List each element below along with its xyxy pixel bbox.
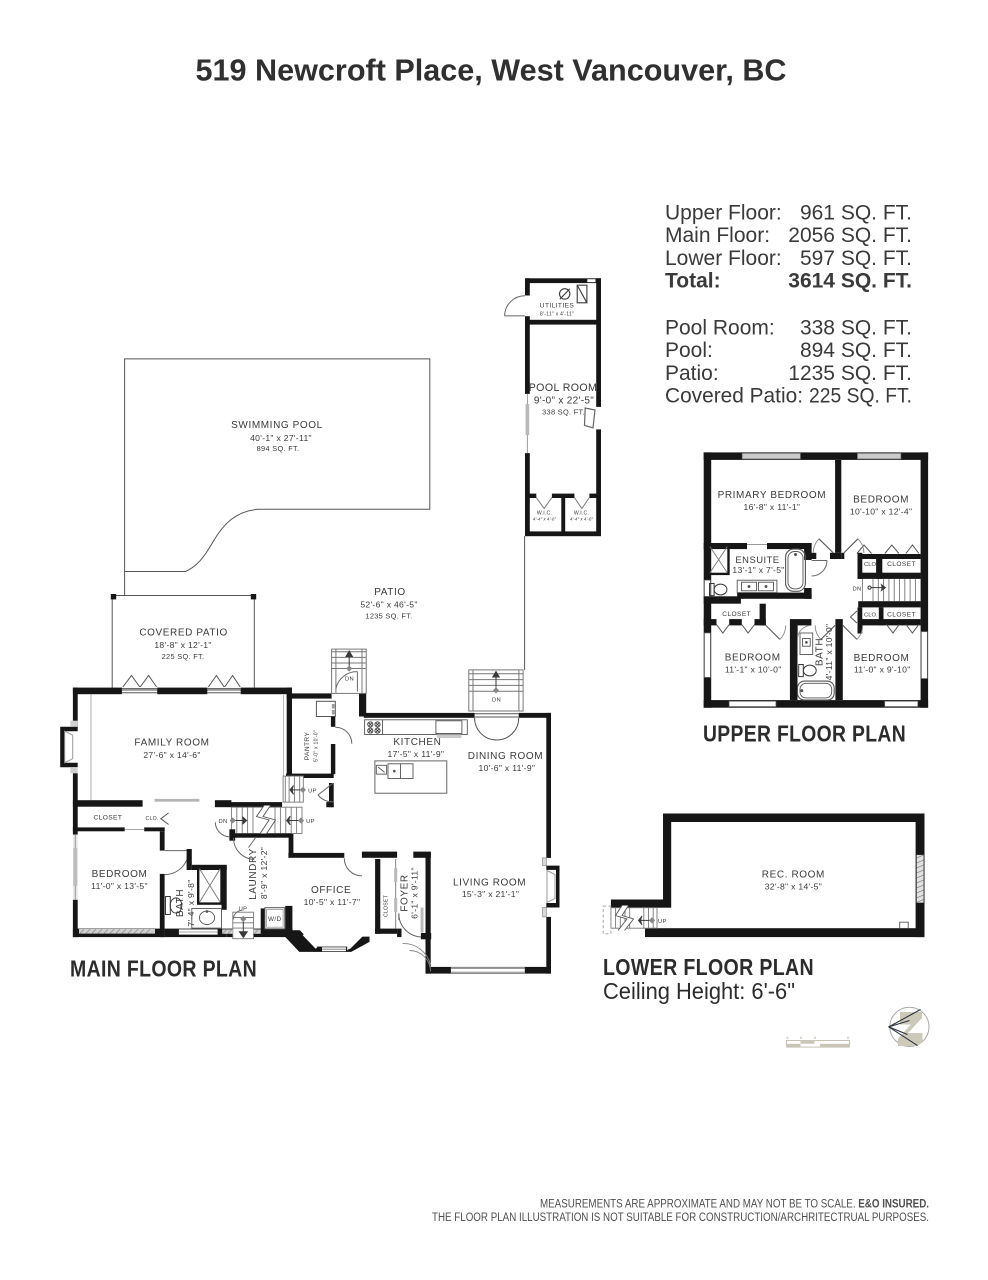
- svg-text:Main Floor:: Main Floor:: [665, 224, 770, 247]
- svg-text:Lower Floor:: Lower Floor:: [665, 247, 782, 270]
- svg-text:Patio:: Patio:: [665, 362, 719, 385]
- svg-text:UP: UP: [308, 788, 317, 794]
- svg-text:40'-1" x 27'-11": 40'-1" x 27'-11": [250, 433, 312, 443]
- svg-text:REC. ROOM: REC. ROOM: [762, 870, 825, 881]
- svg-text:18'-8" x 12'-1": 18'-8" x 12'-1": [154, 640, 211, 650]
- svg-text:10'-10" x 12'-4": 10'-10" x 12'-4": [850, 507, 912, 517]
- svg-text:CLO.: CLO.: [864, 613, 878, 619]
- svg-text:ENSUITE: ENSUITE: [735, 554, 779, 565]
- svg-text:Covered Patio:: Covered Patio:: [665, 385, 803, 408]
- svg-text:PATIO: PATIO: [374, 587, 406, 598]
- svg-text:894 SQ. FT.: 894 SQ. FT.: [800, 339, 912, 362]
- svg-text:32'-8" x 14'-5": 32'-8" x 14'-5": [765, 882, 822, 892]
- svg-text:3614 SQ. FT.: 3614 SQ. FT.: [788, 270, 912, 293]
- svg-text:338 SQ. FT.: 338 SQ. FT.: [542, 408, 585, 417]
- svg-text:11'-0" x 13'-5": 11'-0" x 13'-5": [91, 881, 148, 891]
- svg-text:UTILITIES: UTILITIES: [540, 303, 575, 310]
- svg-text:COVERED PATIO: COVERED PATIO: [139, 628, 228, 639]
- svg-text:10'-6" x 11'-9": 10'-6" x 11'-9": [479, 763, 536, 773]
- svg-text:6'-1" x 9'-11": 6'-1" x 9'-11": [410, 867, 420, 919]
- svg-text:5'-0" x 10'-0": 5'-0" x 10'-0": [314, 730, 320, 762]
- svg-text:DN: DN: [345, 677, 354, 683]
- svg-text:Upper Floor:: Upper Floor:: [665, 202, 782, 225]
- svg-text:10'-5" x 11'-7": 10'-5" x 11'-7": [304, 897, 361, 907]
- svg-text:PANTRY: PANTRY: [304, 732, 311, 761]
- svg-text:597 SQ. FT.: 597 SQ. FT.: [800, 247, 912, 270]
- svg-text:7'-4" x 9'-8": 7'-4" x 9'-8": [186, 879, 196, 926]
- svg-text:2056 SQ. FT.: 2056 SQ. FT.: [788, 224, 912, 247]
- svg-text:Pool Room:: Pool Room:: [665, 317, 775, 340]
- svg-text:KITCHEN: KITCHEN: [393, 737, 441, 748]
- svg-text:1235 SQ. FT.: 1235 SQ. FT.: [365, 612, 412, 621]
- svg-text:11'-0" x 9'-10": 11'-0" x 9'-10": [854, 665, 911, 675]
- svg-text:MEASUREMENTS ARE APPROXIMATE A: MEASUREMENTS ARE APPROXIMATE AND MAY NOT…: [540, 1199, 929, 1211]
- svg-text:9'-0" x 22'-5": 9'-0" x 22'-5": [534, 396, 594, 407]
- svg-text:CLOSET: CLOSET: [384, 894, 390, 917]
- svg-text:52'-6" x 46'-5": 52'-6" x 46'-5": [360, 600, 417, 610]
- svg-text:1235 SQ. FT.: 1235 SQ. FT.: [788, 362, 912, 385]
- svg-text:11'-1" x 10'-0": 11'-1" x 10'-0": [725, 664, 782, 674]
- svg-text:17'-5" x 11'-9": 17'-5" x 11'-9": [388, 749, 445, 759]
- svg-text:OFFICE: OFFICE: [311, 885, 351, 896]
- svg-text:8'-9" x 12'-2": 8'-9" x 12'-2": [259, 847, 269, 899]
- svg-text:CLOSET: CLOSET: [887, 612, 916, 619]
- svg-text:4'-4" x 4'-6": 4'-4" x 4'-6": [533, 517, 557, 522]
- svg-text:THE FLOOR PLAN ILLUSTRATION IS: THE FLOOR PLAN ILLUSTRATION IS NOT SUITA…: [432, 1212, 929, 1224]
- svg-text:338 SQ. FT.: 338 SQ. FT.: [800, 317, 912, 340]
- svg-text:894 SQ. FT.: 894 SQ. FT.: [257, 444, 300, 453]
- svg-text:BATH: BATH: [175, 889, 186, 917]
- svg-text:225 SQ. FT.: 225 SQ. FT.: [809, 385, 912, 408]
- svg-text:CLOSET: CLOSET: [94, 814, 123, 821]
- svg-text:Ceiling Height: 6'-6": Ceiling Height: 6'-6": [603, 978, 795, 1004]
- svg-text:Pool:: Pool:: [665, 339, 713, 362]
- svg-text:519 Newcroft Place, West Vanco: 519 Newcroft Place, West Vancouver, BC: [196, 53, 787, 88]
- svg-text:UP: UP: [306, 819, 315, 825]
- svg-text:UP: UP: [239, 907, 248, 913]
- svg-text:15'-3" x 21'-1": 15'-3" x 21'-1": [462, 889, 519, 899]
- svg-text:PRIMARY BEDROOM: PRIMARY BEDROOM: [718, 490, 827, 501]
- svg-text:225 SQ. FT.: 225 SQ. FT.: [162, 652, 205, 661]
- svg-text:DN: DN: [219, 819, 228, 825]
- svg-text:16'-8" x 11'-1": 16'-8" x 11'-1": [744, 502, 801, 512]
- svg-text:27'-6" x 14'-6": 27'-6" x 14'-6": [143, 750, 200, 760]
- svg-text:DN: DN: [853, 586, 862, 592]
- svg-text:CLO.: CLO.: [864, 562, 878, 568]
- svg-text:8'-11" x 4'-11": 8'-11" x 4'-11": [540, 311, 574, 317]
- svg-text:4'-4" x 4'-6": 4'-4" x 4'-6": [570, 517, 594, 522]
- svg-text:W/D: W/D: [268, 916, 281, 923]
- svg-text:LOWER FLOOR PLAN: LOWER FLOOR PLAN: [603, 954, 814, 980]
- svg-text:UPPER FLOOR PLAN: UPPER FLOOR PLAN: [703, 721, 906, 747]
- svg-text:MAIN FLOOR PLAN: MAIN FLOOR PLAN: [70, 956, 257, 982]
- svg-text:POOL ROOM: POOL ROOM: [529, 382, 598, 394]
- svg-text:BEDROOM: BEDROOM: [92, 869, 148, 880]
- svg-text:FAMILY ROOM: FAMILY ROOM: [134, 738, 209, 749]
- svg-text:LAUNDRY: LAUNDRY: [248, 848, 259, 900]
- svg-text:13'-1" x 7'-5": 13'-1" x 7'-5": [732, 565, 784, 575]
- svg-text:CLOSET: CLOSET: [722, 611, 751, 618]
- svg-text:CLOSET: CLOSET: [887, 561, 916, 568]
- svg-text:DN: DN: [492, 698, 501, 704]
- svg-text:UP: UP: [658, 919, 667, 925]
- svg-text:CLO.: CLO.: [146, 816, 159, 822]
- svg-text:961 SQ. FT.: 961 SQ. FT.: [800, 202, 912, 225]
- svg-text:SWIMMING POOL: SWIMMING POOL: [231, 420, 323, 431]
- svg-text:BEDROOM: BEDROOM: [725, 653, 781, 664]
- svg-text:Total:: Total:: [665, 270, 721, 293]
- svg-text:BEDROOM: BEDROOM: [854, 653, 910, 664]
- svg-text:DINING ROOM: DINING ROOM: [468, 751, 544, 762]
- svg-text:BEDROOM: BEDROOM: [853, 495, 909, 506]
- svg-text:LIVING ROOM: LIVING ROOM: [453, 878, 526, 889]
